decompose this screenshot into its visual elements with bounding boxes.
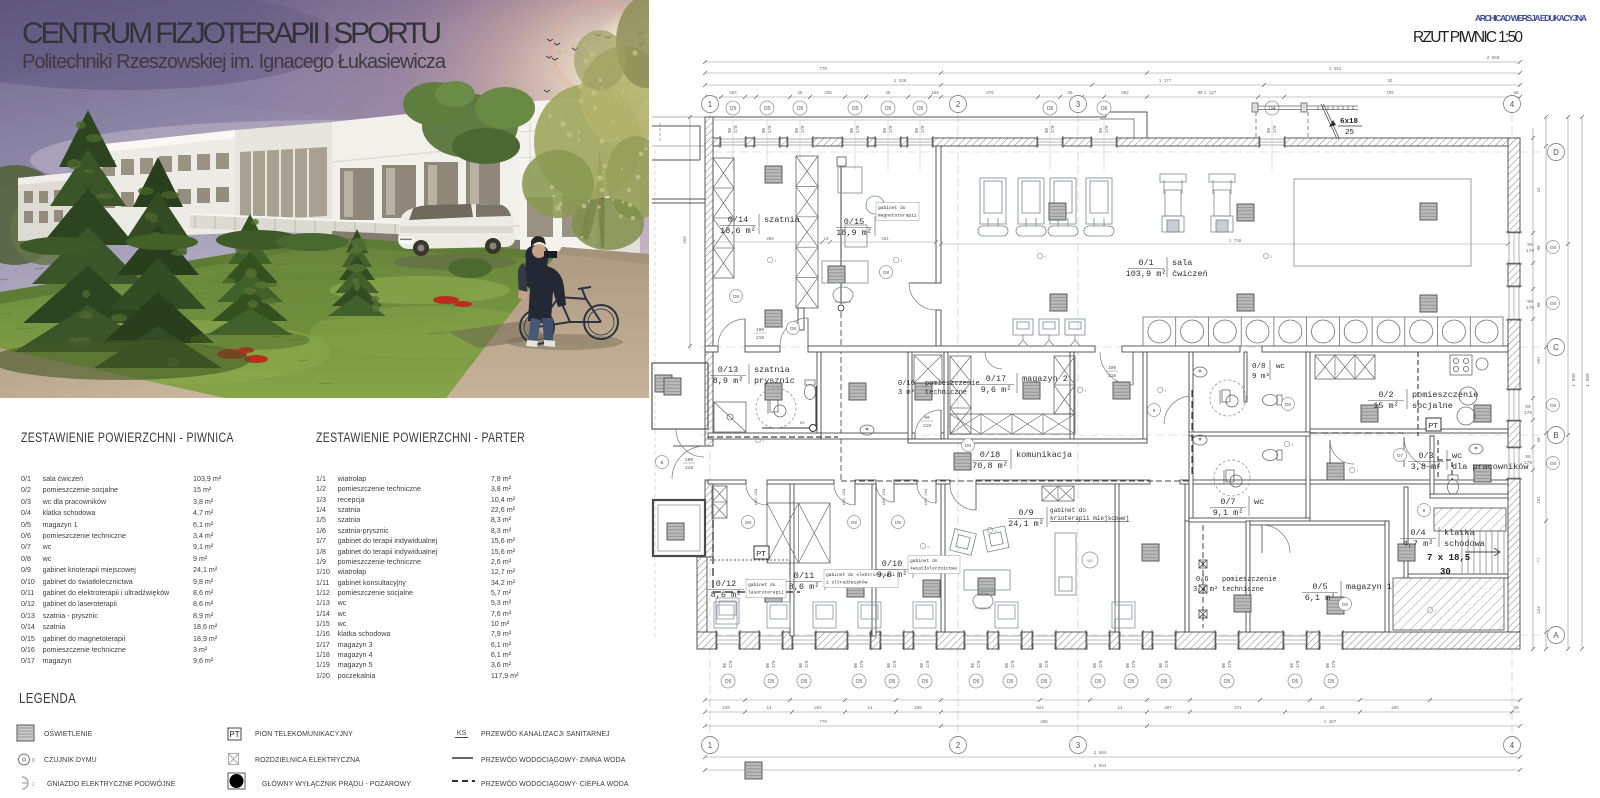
svg-text:100 210: 100 210 <box>843 488 847 505</box>
svg-text:90: 90 <box>767 662 771 668</box>
svg-text:100: 100 <box>1108 365 1116 371</box>
svg-text:170: 170 <box>1524 410 1532 416</box>
svg-text:wc: wc <box>1276 363 1285 371</box>
svg-text:90: 90 <box>1100 127 1104 133</box>
svg-text:305: 305 <box>766 238 774 242</box>
svg-text:14: 14 <box>1117 707 1123 711</box>
svg-text:90: 90 <box>1538 302 1542 308</box>
svg-text:90: 90 <box>1040 662 1044 668</box>
svg-text:O5: O5 <box>885 106 892 112</box>
svg-text:gabinet do: gabinet do <box>910 558 938 564</box>
svg-text:100: 100 <box>756 327 764 333</box>
svg-text:O6: O6 <box>1047 106 1054 112</box>
svg-text:0/8: 0/8 <box>1252 363 1266 371</box>
svg-text:18,6 m²: 18,6 m² <box>720 226 756 236</box>
svg-text:90: 90 <box>724 662 728 668</box>
svg-text:magazyn 1: magazyn 1 <box>1346 582 1392 592</box>
svg-text:i ultradźwięków: i ultradźwięków <box>826 580 868 586</box>
svg-text:4: 4 <box>1291 444 1293 448</box>
svg-text:magnetoterapii: magnetoterapii <box>878 213 917 219</box>
svg-text:524: 524 <box>1036 707 1044 711</box>
svg-text:4,7 m²: 4,7 m² <box>1403 539 1434 549</box>
svg-text:90: 90 <box>1127 662 1131 668</box>
svg-text:1 988: 1 988 <box>1571 373 1577 387</box>
svg-text:34: 34 <box>1538 187 1542 193</box>
svg-text:281: 281 <box>1538 496 1542 504</box>
svg-text:4: 4 <box>927 546 929 550</box>
svg-text:90: 90 <box>1527 299 1533 305</box>
svg-text:KS: KS <box>800 422 805 426</box>
svg-text:90: 90 <box>1094 662 1098 668</box>
svg-text:170: 170 <box>802 125 806 133</box>
svg-text:4: 4 <box>1164 390 1166 394</box>
svg-text:0/4: 0/4 <box>1410 528 1425 538</box>
svg-text:D8: D8 <box>733 294 739 299</box>
svg-text:90: 90 <box>796 127 800 133</box>
svg-text:B: B <box>1553 431 1558 440</box>
svg-text:90: 90 <box>1525 404 1531 410</box>
svg-text:4: 4 <box>762 440 764 444</box>
svg-text:170: 170 <box>1526 248 1534 254</box>
svg-text:O6: O6 <box>1101 106 1108 112</box>
svg-text:170: 170 <box>1526 305 1534 311</box>
svg-text:1 738: 1 738 <box>1229 240 1242 244</box>
svg-text:0/18: 0/18 <box>980 450 1000 460</box>
svg-text:0/5: 0/5 <box>1312 582 1327 592</box>
svg-text:170: 170 <box>773 660 777 668</box>
svg-text:90: 90 <box>855 662 859 668</box>
svg-text:0/6: 0/6 <box>1196 576 1209 584</box>
svg-text:0/14: 0/14 <box>728 215 748 225</box>
svg-text:O5: O5 <box>973 679 980 685</box>
svg-text:O5: O5 <box>797 106 804 112</box>
svg-text:O5: O5 <box>1292 679 1299 685</box>
svg-text:170: 170 <box>1229 660 1233 668</box>
svg-text:O5: O5 <box>730 106 737 112</box>
svg-text:361: 361 <box>881 238 889 242</box>
svg-text:170: 170 <box>857 125 861 133</box>
svg-text:170: 170 <box>1052 125 1056 133</box>
svg-text:779: 779 <box>819 68 827 72</box>
svg-text:26: 26 <box>1067 92 1073 96</box>
svg-text:D8: D8 <box>883 270 889 275</box>
svg-text:A: A <box>1553 631 1559 640</box>
svg-text:2: 2 <box>956 100 961 109</box>
svg-text:244: 244 <box>1538 606 1542 614</box>
svg-text:1 127: 1 127 <box>1204 92 1217 96</box>
svg-text:230: 230 <box>722 707 730 711</box>
svg-text:90: 90 <box>1006 662 1010 668</box>
svg-text:O5: O5 <box>1128 679 1135 685</box>
svg-text:3,4 m²: 3,4 m² <box>1193 586 1218 594</box>
svg-text:1 177: 1 177 <box>1159 80 1172 84</box>
svg-text:170: 170 <box>735 125 739 133</box>
svg-text:170: 170 <box>978 660 982 668</box>
svg-text:techniczne: techniczne <box>925 389 967 397</box>
svg-text:O5: O5 <box>1328 679 1335 685</box>
svg-text:9,1 m²: 9,1 m² <box>1213 508 1244 518</box>
svg-text:RZUT PIWNIC 1:50: RZUT PIWNIC 1:50 <box>1413 29 1523 46</box>
svg-text:O4: O4 <box>1269 106 1276 112</box>
svg-text:170: 170 <box>890 125 894 133</box>
svg-text:90: 90 <box>888 662 892 668</box>
svg-text:30: 30 <box>1440 567 1451 577</box>
svg-text:58: 58 <box>1538 437 1542 443</box>
svg-text:100 210: 100 210 <box>925 488 929 505</box>
svg-text:3,8 m²: 3,8 m² <box>1411 462 1442 472</box>
svg-text:90: 90 <box>1291 662 1295 668</box>
svg-text:komunikacja: komunikacja <box>1016 450 1072 460</box>
svg-text:90: 90 <box>1525 454 1531 460</box>
svg-text:0/2: 0/2 <box>1378 390 1393 400</box>
svg-text:O5: O5 <box>889 679 896 685</box>
svg-text:1 338: 1 338 <box>894 80 907 84</box>
svg-text:prysznic: prysznic <box>754 376 795 386</box>
svg-text:24,1 m²: 24,1 m² <box>1008 519 1044 529</box>
svg-text:0/12: 0/12 <box>716 579 736 589</box>
svg-text:ćwiczeń: ćwiczeń <box>1172 269 1208 279</box>
svg-text:567: 567 <box>1538 356 1542 364</box>
svg-text:90: 90 <box>972 662 976 668</box>
svg-text:170: 170 <box>1046 660 1050 668</box>
svg-text:482: 482 <box>1087 558 1094 563</box>
svg-text:4: 4 <box>1510 741 1515 750</box>
svg-text:O5: O5 <box>1161 679 1168 685</box>
svg-text:krioterapii miejscowej: krioterapii miejscowej <box>1050 515 1129 522</box>
svg-text:O8: O8 <box>1550 403 1557 408</box>
svg-text:170: 170 <box>1297 660 1301 668</box>
svg-text:szatnia: szatnia <box>764 215 800 225</box>
svg-text:O5: O5 <box>1224 679 1231 685</box>
svg-text:779: 779 <box>819 721 827 725</box>
svg-text:14: 14 <box>823 238 829 242</box>
svg-text:4: 4 <box>1434 610 1436 614</box>
svg-text:3: 3 <box>1076 100 1081 109</box>
svg-text:PT: PT <box>1428 421 1438 430</box>
svg-text:90: 90 <box>1046 127 1050 133</box>
svg-text:1: 1 <box>708 741 713 750</box>
svg-text:90: 90 <box>763 127 767 133</box>
svg-text:O5: O5 <box>801 679 808 685</box>
svg-text:9,8 m²: 9,8 m² <box>877 570 908 580</box>
svg-text:170: 170 <box>1166 660 1170 668</box>
svg-text:O5: O5 <box>764 106 771 112</box>
svg-text:dla pracowników: dla pracowników <box>1452 462 1529 472</box>
svg-text:D8: D8 <box>745 520 751 525</box>
svg-text:210: 210 <box>923 423 931 429</box>
svg-text:D8: D8 <box>851 520 857 525</box>
svg-text:170: 170 <box>1106 125 1110 133</box>
svg-text:207: 207 <box>1164 707 1172 711</box>
svg-text:D8: D8 <box>965 443 971 448</box>
svg-text:D7: D7 <box>1397 453 1403 458</box>
svg-text:100 210: 100 210 <box>883 488 887 505</box>
svg-text:380: 380 <box>1040 721 1048 725</box>
svg-text:170: 170 <box>927 660 931 668</box>
svg-text:77: 77 <box>1538 557 1542 563</box>
svg-text:socjalne: socjalne <box>1412 401 1453 411</box>
svg-text:338: 338 <box>824 92 832 96</box>
svg-text:światłolecznictwa: światłolecznictwa <box>910 566 957 572</box>
svg-text:gabinet do: gabinet do <box>878 205 906 211</box>
svg-text:568: 568 <box>684 236 688 244</box>
svg-text:4: 4 <box>1356 470 1358 474</box>
svg-text:C: C <box>1553 343 1559 352</box>
svg-text:4: 4 <box>774 260 776 264</box>
svg-text:8,6 m²: 8,6 m² <box>711 590 742 600</box>
svg-text:170: 170 <box>730 660 734 668</box>
svg-text:25: 25 <box>1345 129 1355 137</box>
svg-text:2 584: 2 584 <box>1094 765 1107 769</box>
svg-text:26: 26 <box>885 92 891 96</box>
svg-text:9,6 m²: 9,6 m² <box>981 385 1012 395</box>
svg-text:26: 26 <box>1319 707 1325 711</box>
svg-text:D8: D8 <box>895 520 901 525</box>
svg-text:B: B <box>660 460 663 465</box>
svg-text:210: 210 <box>1108 373 1116 379</box>
svg-text:pomieszczenie: pomieszczenie <box>1412 390 1478 400</box>
svg-text:klatka: klatka <box>1444 528 1475 538</box>
svg-text:170: 170 <box>922 125 926 133</box>
svg-text:100: 100 <box>685 457 693 463</box>
svg-text:4: 4 <box>1044 256 1046 260</box>
svg-text:14: 14 <box>867 707 873 711</box>
svg-text:170: 170 <box>894 660 898 668</box>
svg-text:90: 90 <box>1223 662 1227 668</box>
svg-text:70,8 m²: 70,8 m² <box>972 461 1008 471</box>
svg-text:techniczne: techniczne <box>1222 586 1264 594</box>
svg-text:8,6 m²: 8,6 m² <box>789 582 820 592</box>
svg-text:1 988: 1 988 <box>1585 373 1591 387</box>
svg-text:szatnia: szatnia <box>754 365 790 375</box>
svg-text:170: 170 <box>1333 660 1337 668</box>
svg-text:O5: O5 <box>1007 679 1014 685</box>
svg-text:755: 755 <box>1386 92 1394 96</box>
svg-text:90: 90 <box>1160 662 1164 668</box>
svg-text:210: 210 <box>685 465 693 471</box>
svg-text:0/11: 0/11 <box>794 571 814 581</box>
svg-text:90: 90 <box>1538 245 1542 251</box>
svg-text:O8: O8 <box>1550 461 1557 466</box>
svg-text:362: 362 <box>1121 92 1129 96</box>
svg-text:D8: D8 <box>790 326 796 331</box>
svg-text:80: 80 <box>1197 92 1203 96</box>
svg-text:371: 371 <box>1234 707 1242 711</box>
svg-text:170: 170 <box>861 660 865 668</box>
svg-text:1: 1 <box>708 100 713 109</box>
svg-text:33: 33 <box>1387 80 1393 84</box>
svg-text:schodowa: schodowa <box>1444 539 1485 549</box>
svg-text:90: 90 <box>729 127 733 133</box>
svg-text:0/1: 0/1 <box>1138 258 1153 268</box>
svg-text:264: 264 <box>814 707 822 711</box>
svg-text:4: 4 <box>1510 100 1515 109</box>
svg-text:pomieszczenie: pomieszczenie <box>925 380 980 388</box>
svg-text:0/13: 0/13 <box>718 365 738 375</box>
svg-text:pomieszczenie: pomieszczenie <box>1222 576 1277 584</box>
svg-text:O8: O8 <box>1550 245 1557 250</box>
svg-text:50: 50 <box>1513 707 1519 711</box>
svg-text:3 m²: 3 m² <box>898 389 915 397</box>
svg-text:4: 4 <box>900 260 902 264</box>
svg-text:O5: O5 <box>852 106 859 112</box>
svg-text:2 566: 2 566 <box>1487 57 1500 61</box>
svg-text:8,9 m²: 8,9 m² <box>713 376 744 386</box>
svg-text:100 210: 100 210 <box>755 488 759 505</box>
svg-text:gabinet do: gabinet do <box>748 582 776 588</box>
svg-text:sala: sala <box>1172 258 1192 268</box>
svg-text:90: 90 <box>1268 127 1272 133</box>
svg-text:7 x 18,5: 7 x 18,5 <box>1427 553 1470 563</box>
svg-text:0/9: 0/9 <box>1018 508 1033 518</box>
svg-text:170: 170 <box>806 660 810 668</box>
svg-text:O5: O5 <box>856 679 863 685</box>
svg-text:O5: O5 <box>922 679 929 685</box>
svg-text:1 357: 1 357 <box>1324 721 1337 725</box>
svg-text:208: 208 <box>914 707 922 711</box>
svg-text:170: 170 <box>1012 660 1016 668</box>
svg-text:O5: O5 <box>1041 679 1048 685</box>
svg-text:354: 354 <box>729 92 737 96</box>
svg-text:165: 165 <box>931 92 939 96</box>
svg-text:0/3: 0/3 <box>1418 451 1433 461</box>
svg-text:O5: O5 <box>768 679 775 685</box>
svg-text:365: 365 <box>1391 707 1399 711</box>
svg-text:O5: O5 <box>1095 679 1102 685</box>
svg-text:90: 90 <box>921 662 925 668</box>
svg-text:magazyn 2: magazyn 2 <box>1022 374 1068 384</box>
svg-text:ARCHICAD WERSJA EDUKACYJNA: ARCHICAD WERSJA EDUKACYJNA <box>1475 13 1587 23</box>
svg-text:90: 90 <box>884 127 888 133</box>
svg-text:4: 4 <box>994 530 996 534</box>
svg-text:6,1 m²: 6,1 m² <box>1305 593 1336 603</box>
svg-text:0/10: 0/10 <box>882 559 902 569</box>
svg-text:170: 170 <box>1133 660 1137 668</box>
svg-text:26: 26 <box>797 92 803 96</box>
svg-text:6x18: 6x18 <box>1340 118 1359 126</box>
svg-text:14: 14 <box>766 707 772 711</box>
svg-text:170: 170 <box>1100 660 1104 668</box>
svg-text:O8: O8 <box>1550 301 1557 306</box>
svg-text:O5: O5 <box>725 679 732 685</box>
svg-text:gabinet do: gabinet do <box>1050 507 1086 514</box>
svg-text:wc: wc <box>1254 497 1264 507</box>
svg-text:376: 376 <box>986 92 994 96</box>
svg-text:90: 90 <box>924 415 930 421</box>
svg-text:0/17: 0/17 <box>986 374 1006 384</box>
svg-text:18,9 m²: 18,9 m² <box>836 228 872 238</box>
svg-text:90: 90 <box>916 127 920 133</box>
svg-text:D8: D8 <box>1342 602 1348 607</box>
svg-text:170: 170 <box>1274 125 1278 133</box>
svg-text:103,9 m²: 103,9 m² <box>1126 269 1167 279</box>
svg-text:D: D <box>1553 148 1559 157</box>
svg-text:210: 210 <box>756 335 764 341</box>
svg-text:90: 90 <box>800 662 804 668</box>
svg-text:PT: PT <box>756 549 766 558</box>
svg-text:90: 90 <box>1327 662 1331 668</box>
svg-text:0/7: 0/7 <box>1220 497 1235 507</box>
svg-text:D8: D8 <box>1285 402 1291 407</box>
svg-text:90: 90 <box>851 127 855 133</box>
svg-text:wc: wc <box>1452 451 1462 461</box>
svg-text:9 m²: 9 m² <box>1252 372 1270 381</box>
svg-text:15 m²: 15 m² <box>1373 401 1399 411</box>
svg-text:90: 90 <box>1527 242 1533 248</box>
svg-text:O5: O5 <box>917 106 924 112</box>
svg-text:2 584: 2 584 <box>1094 752 1107 756</box>
svg-text:1 381: 1 381 <box>1329 68 1342 72</box>
svg-text:170: 170 <box>769 125 773 133</box>
svg-text:0/16: 0/16 <box>898 380 915 388</box>
svg-text:laseroterapii: laseroterapii <box>748 590 784 596</box>
svg-text:0/15: 0/15 <box>844 217 864 227</box>
svg-text:4: 4 <box>1084 390 1086 394</box>
svg-text:3: 3 <box>1076 741 1081 750</box>
svg-text:4: 4 <box>1270 256 1272 260</box>
svg-text:2: 2 <box>956 741 961 750</box>
